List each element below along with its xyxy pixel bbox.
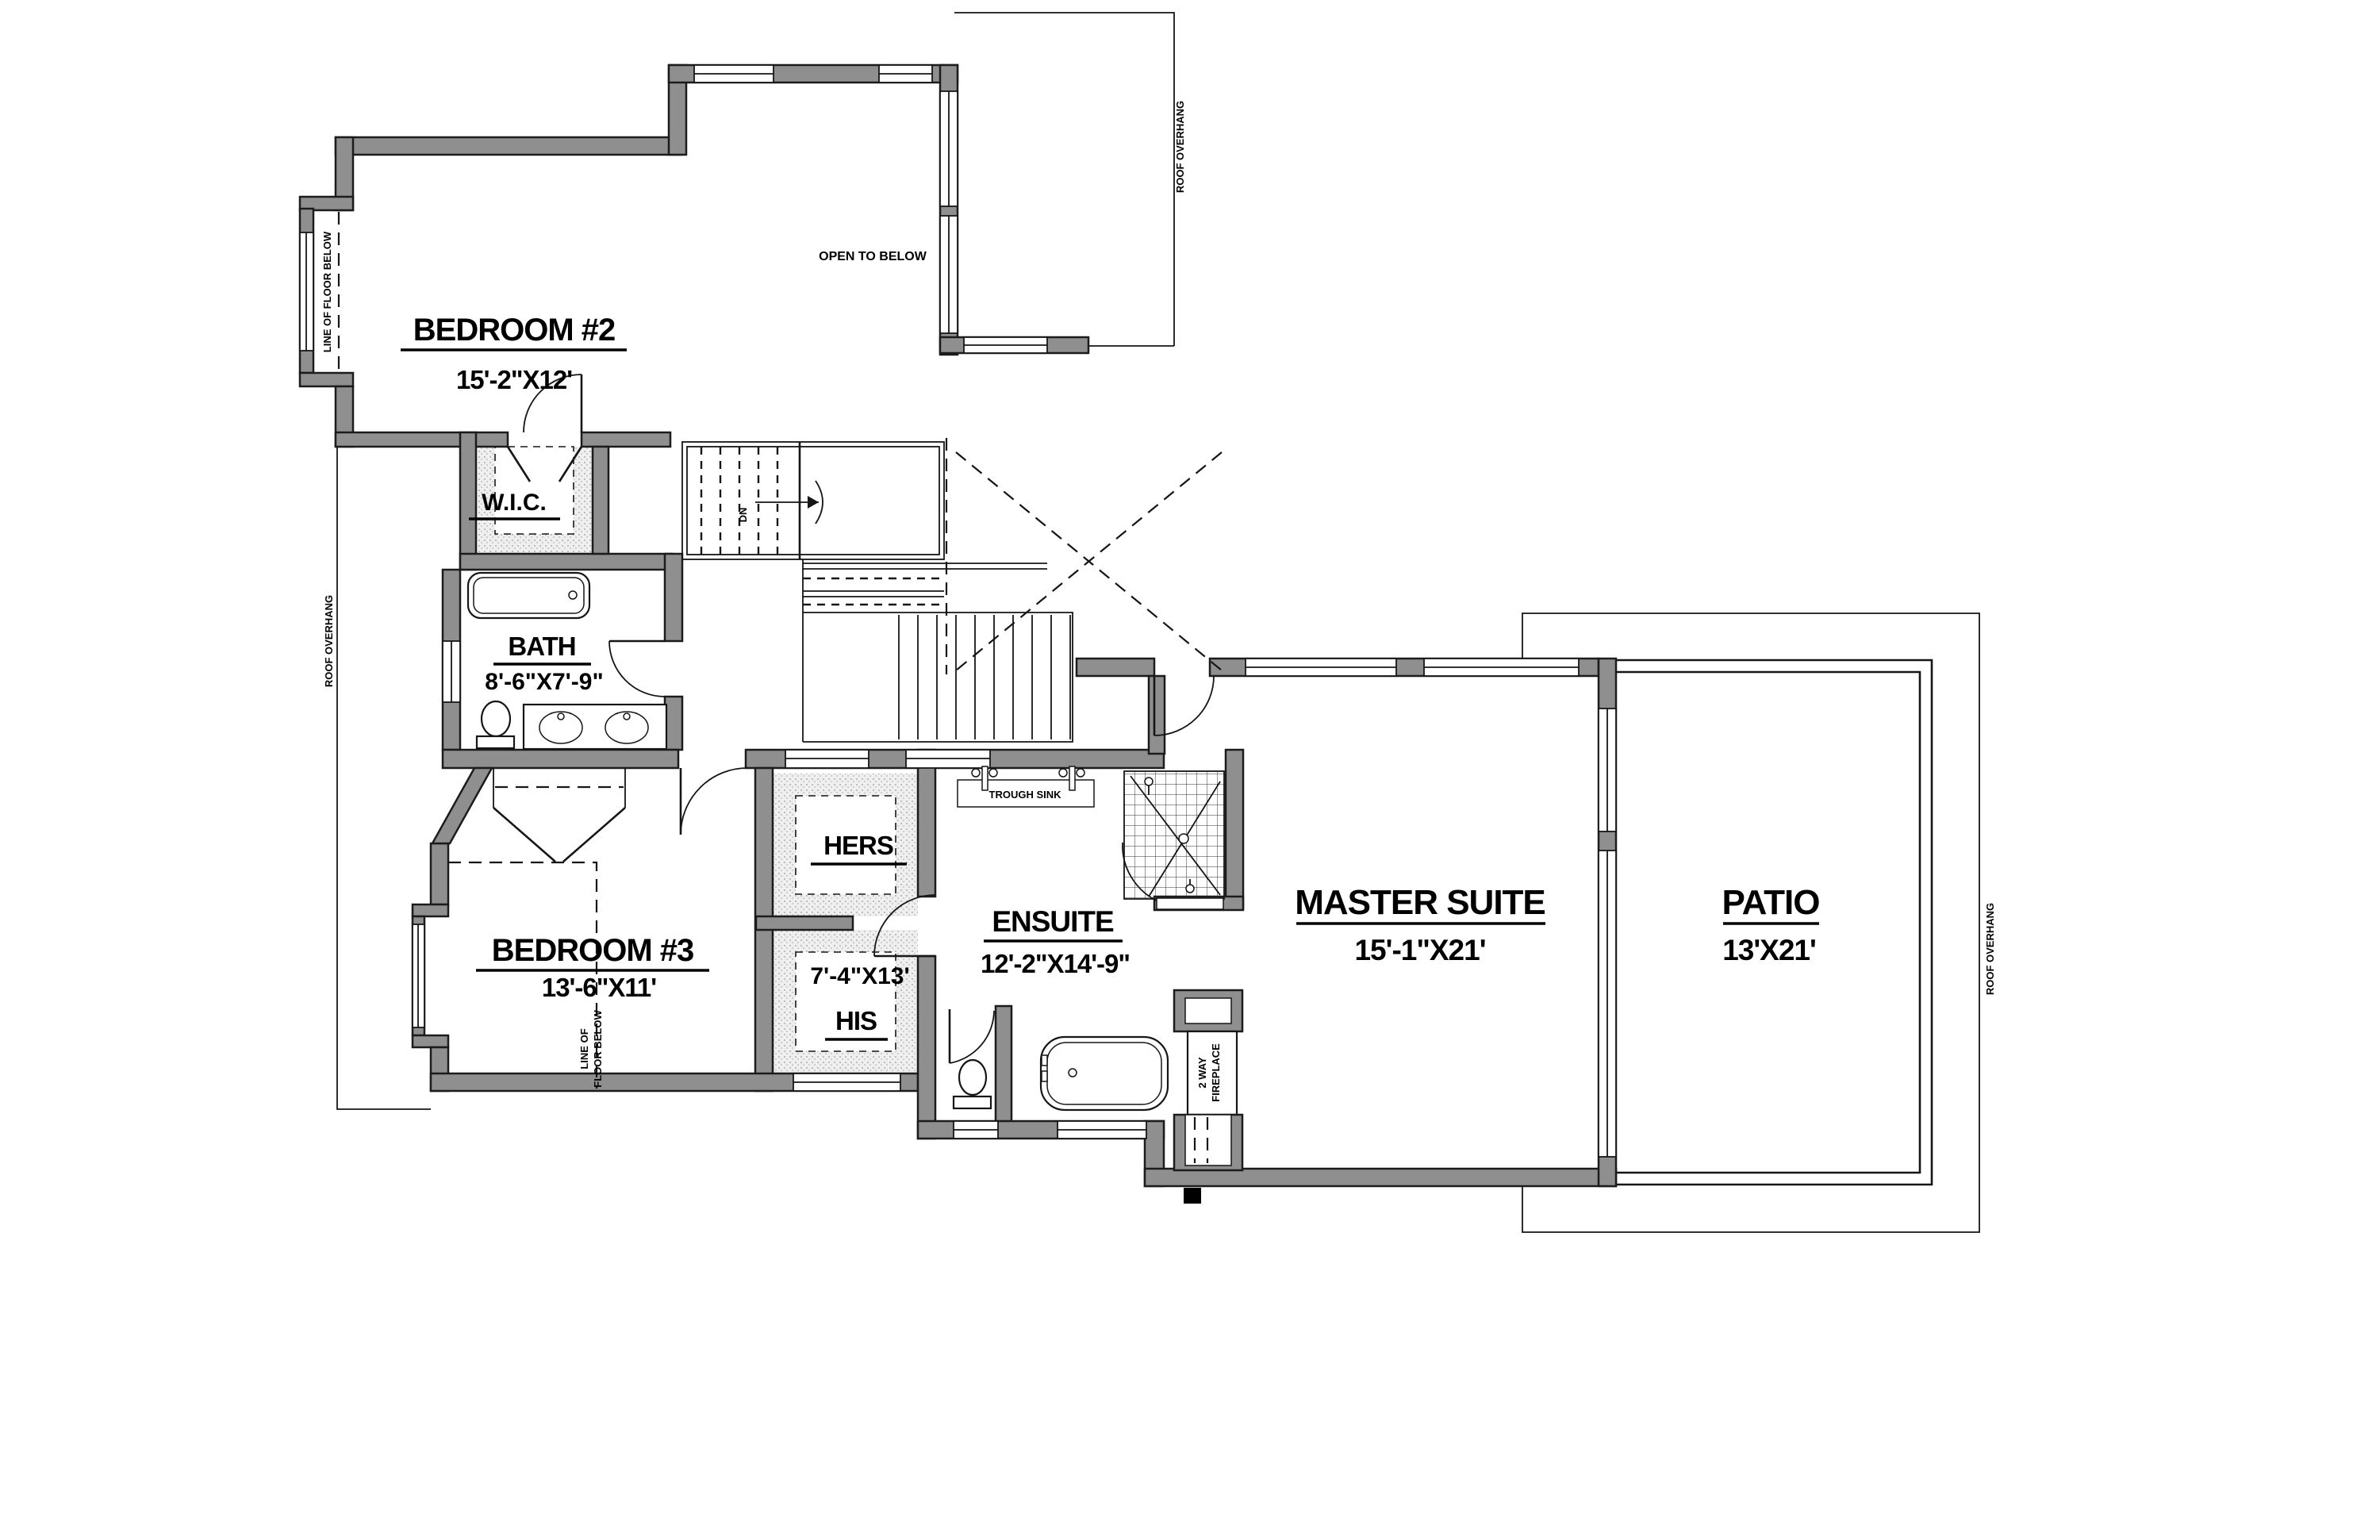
bath-name: BATH	[508, 632, 575, 661]
window	[413, 924, 424, 1027]
stair-arrow-head	[808, 496, 819, 509]
bedroom3-door	[681, 768, 747, 835]
fireplace-label-line1: 2 WAY	[1196, 1057, 1208, 1089]
bedroom2-dims: 15'-2"X12'	[456, 365, 572, 394]
toilet	[959, 1060, 986, 1095]
window	[300, 232, 313, 351]
window	[1424, 659, 1579, 676]
window	[964, 337, 1047, 353]
floor-plan-page: DN	[0, 0, 2380, 1540]
his-dims: 7'-4"X13'	[810, 963, 909, 989]
bedroom3-dims: 13'-6"X11'	[542, 973, 656, 1002]
bath-door	[609, 641, 665, 697]
roof-overhang-top: ROOF OVERHANG	[1174, 101, 1186, 193]
window	[954, 1121, 998, 1139]
window	[785, 750, 869, 768]
hers-name: HERS	[823, 831, 893, 860]
bedroom3-name: BEDROOM #3	[492, 933, 694, 968]
master-dims: 15'-1"X21'	[1354, 934, 1485, 966]
window	[879, 65, 932, 83]
window	[793, 1073, 900, 1091]
bath-dims: 8'-6"X7'-9"	[485, 669, 603, 695]
window	[694, 65, 773, 83]
sliding-door-window	[1599, 709, 1616, 831]
roof-overhang-right: ROOF OVERHANG	[1984, 903, 1996, 995]
bedroom3-closet-doors	[493, 768, 625, 862]
stairs: DN	[682, 442, 1073, 742]
window	[1058, 1121, 1146, 1139]
window	[940, 91, 958, 206]
trough-sink-label: TROUGH SINK	[989, 789, 1062, 801]
water-closet-door	[950, 1009, 994, 1063]
ensuite-name: ENSUITE	[992, 905, 1114, 938]
window	[443, 641, 460, 702]
sliding-door-window	[1599, 851, 1616, 1157]
ensuite-fixtures	[954, 766, 1224, 1110]
line-of-floor-below-b3-l1: LINE OF	[578, 1028, 590, 1069]
patio-dims: 13'X21'	[1722, 934, 1816, 966]
open-to-below-label: OPEN TO BELOW	[819, 250, 927, 263]
fireplace-label-line2: FIREPLACE	[1210, 1043, 1222, 1102]
line-of-floor-below-b3-l2: FLOOR BELOW	[592, 1010, 604, 1088]
ensuite-dims: 12'-2"X14'-9"	[981, 949, 1130, 978]
shower-bench	[1157, 898, 1223, 909]
stair-down-label: DN	[737, 508, 749, 523]
window	[1246, 659, 1396, 676]
shower	[1124, 771, 1224, 909]
his-name: HIS	[835, 1006, 877, 1035]
toilet	[482, 701, 510, 736]
chimney-marker	[1184, 1188, 1201, 1204]
bath-fixtures	[468, 573, 666, 749]
window	[906, 750, 990, 768]
patio-name: PATIO	[1722, 883, 1820, 922]
floor-plan-canvas: DN	[0, 0, 2380, 1540]
wic-name: W.I.C.	[482, 490, 547, 516]
open-to-below-void	[946, 438, 1222, 674]
roof-overhang-left: ROOF OVERHANG	[323, 595, 335, 687]
bedroom2-name: BEDROOM #2	[413, 313, 616, 348]
master-name: MASTER SUITE	[1295, 883, 1545, 922]
line-of-floor-below-left: LINE OF FLOOR BELOW	[321, 231, 333, 352]
window	[940, 216, 958, 333]
